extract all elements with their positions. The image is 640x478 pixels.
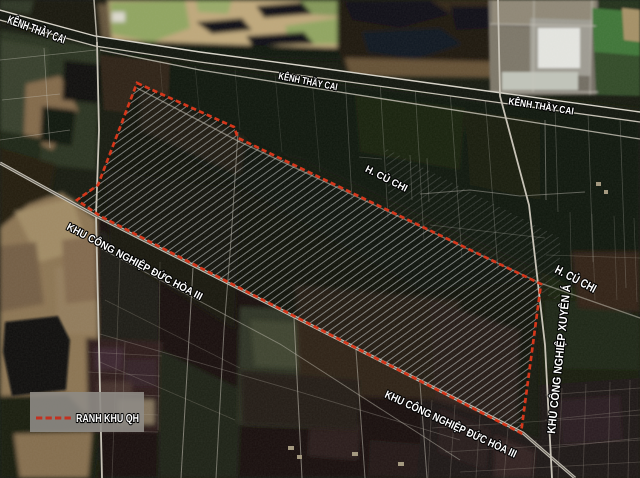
svg-text:RANH KHU QH: RANH KHU QH: [76, 413, 139, 425]
